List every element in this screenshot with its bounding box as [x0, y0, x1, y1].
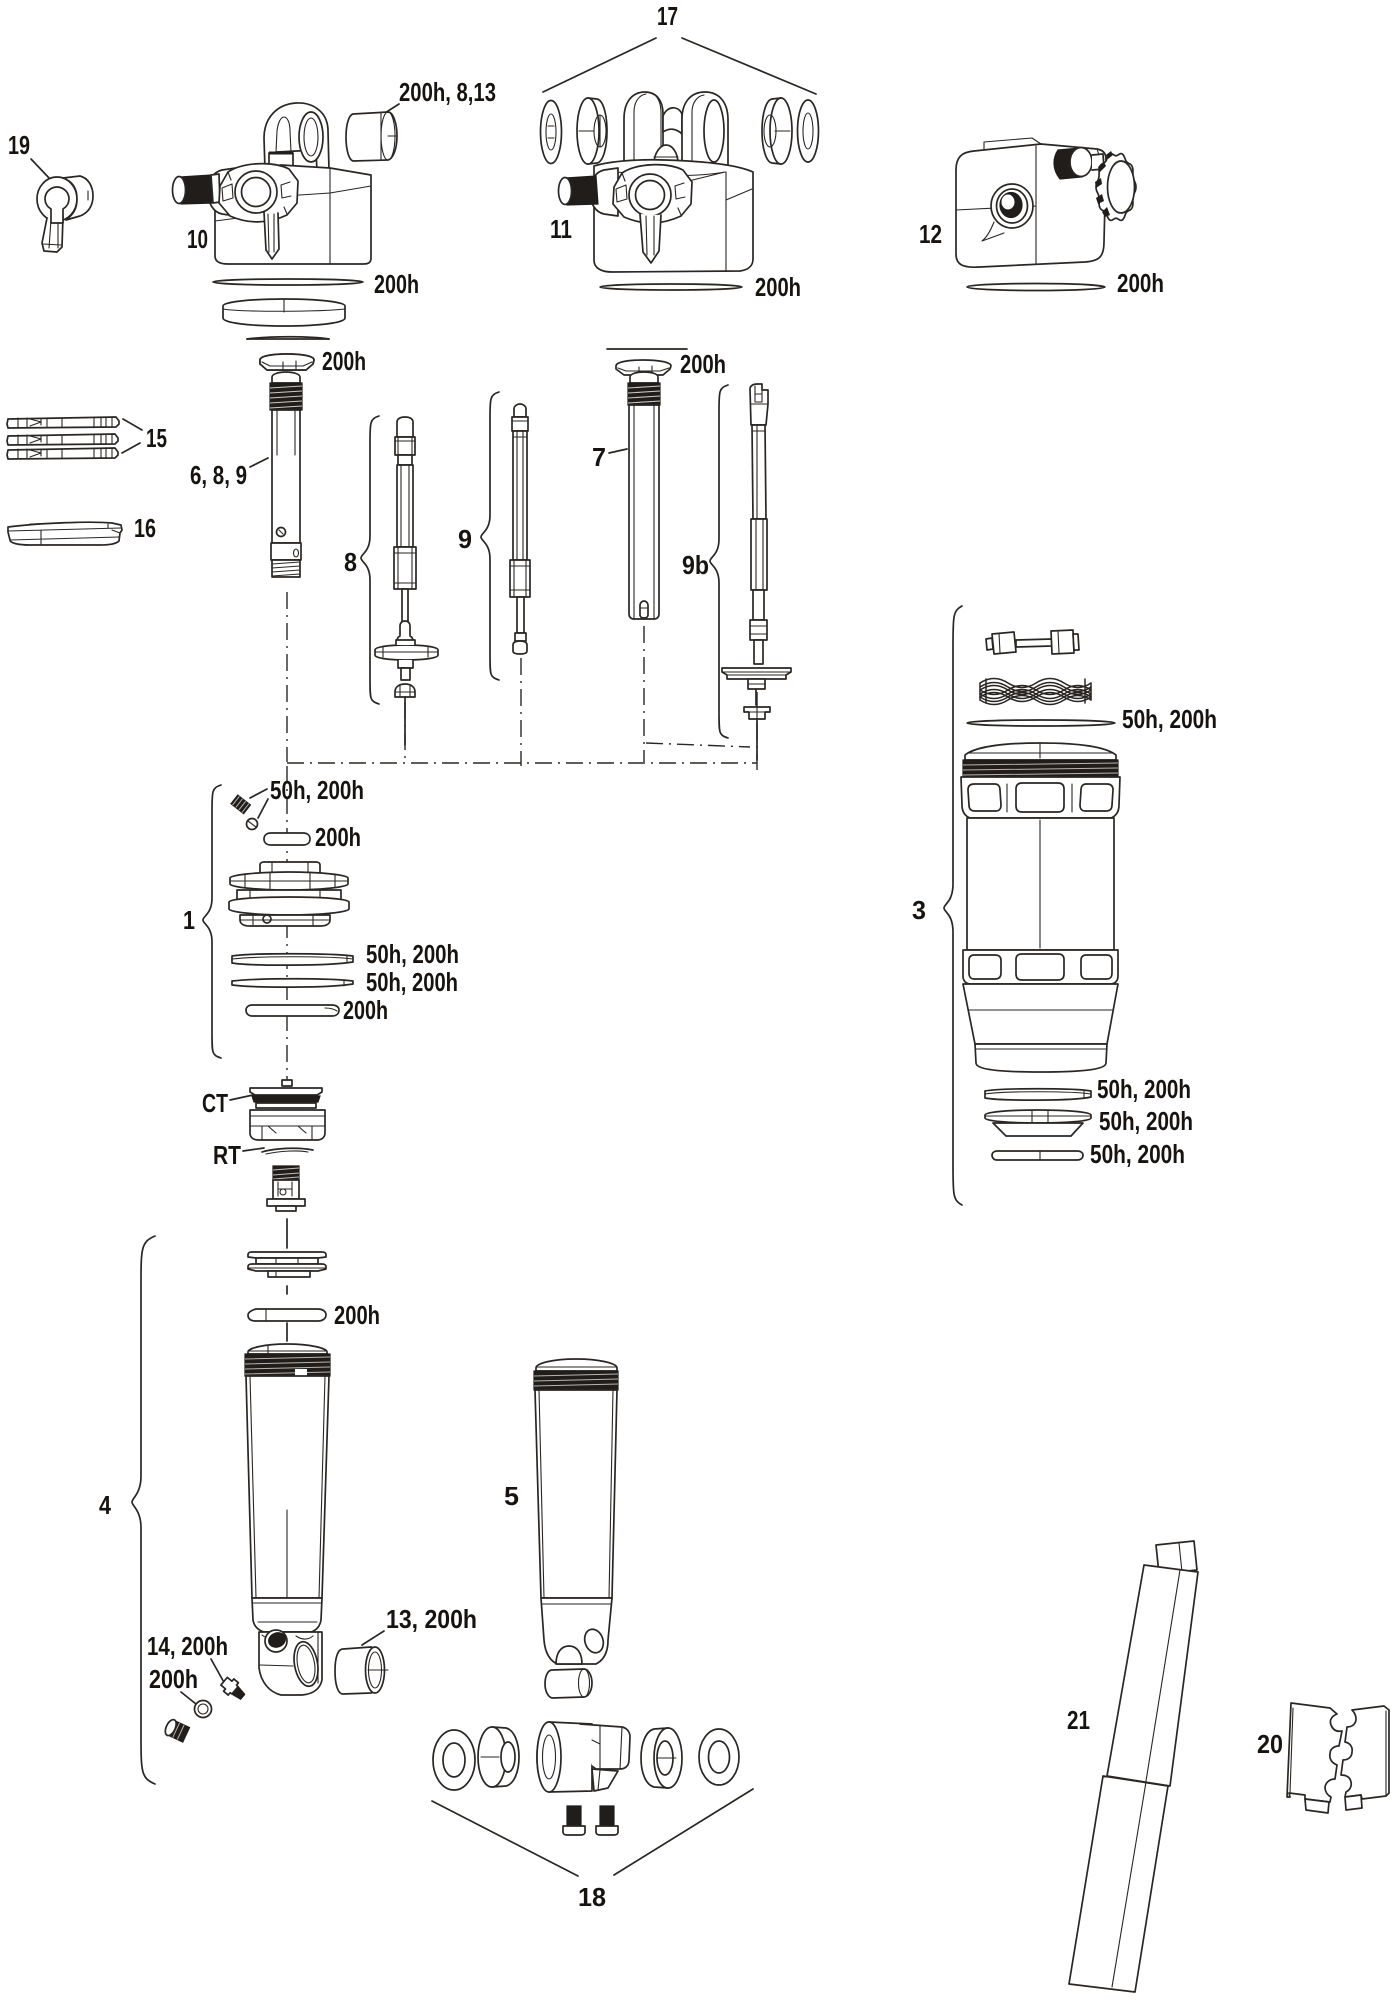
svg-text:16: 16 — [134, 513, 156, 543]
svg-text:50h, 200h: 50h, 200h — [366, 967, 458, 997]
svg-text:200h: 200h — [334, 1300, 380, 1330]
svg-text:19: 19 — [8, 130, 30, 160]
svg-text:17: 17 — [657, 1, 678, 31]
svg-text:10: 10 — [187, 224, 208, 254]
svg-text:20: 20 — [1257, 1729, 1283, 1759]
svg-text:50h, 200h: 50h, 200h — [366, 939, 459, 969]
svg-text:200h: 200h — [343, 995, 388, 1025]
svg-text:21: 21 — [1067, 1705, 1090, 1735]
svg-text:18: 18 — [578, 1882, 606, 1912]
svg-text:50h, 200h: 50h, 200h — [1097, 1074, 1191, 1104]
svg-text:CT: CT — [202, 1088, 228, 1118]
svg-text:200h: 200h — [1117, 268, 1164, 298]
svg-text:50h, 200h: 50h, 200h — [1099, 1106, 1193, 1136]
svg-text:3: 3 — [912, 895, 926, 925]
svg-text:200h: 200h — [374, 269, 419, 299]
svg-text:9: 9 — [458, 524, 472, 554]
svg-text:14, 200h: 14, 200h — [147, 1631, 228, 1661]
svg-text:200h: 200h — [315, 822, 361, 852]
svg-text:200h: 200h — [322, 346, 366, 376]
svg-text:1: 1 — [183, 905, 195, 935]
svg-text:50h, 200h: 50h, 200h — [1090, 1139, 1185, 1169]
svg-text:200h: 200h — [680, 349, 726, 379]
svg-text:7: 7 — [592, 442, 606, 472]
svg-text:50h, 200h: 50h, 200h — [1122, 704, 1217, 734]
svg-text:200h: 200h — [755, 272, 801, 302]
svg-text:9b: 9b — [682, 550, 709, 580]
svg-text:4: 4 — [99, 1490, 111, 1520]
svg-text:13, 200h: 13, 200h — [386, 1604, 477, 1634]
svg-text:200h, 8,13: 200h, 8,13 — [399, 77, 496, 107]
svg-text:6, 8, 9: 6, 8, 9 — [190, 460, 247, 490]
svg-text:5: 5 — [504, 1481, 519, 1511]
svg-text:50h, 200h: 50h, 200h — [270, 775, 364, 805]
svg-text:200h: 200h — [149, 1664, 198, 1694]
svg-text:12: 12 — [919, 219, 942, 249]
svg-text:11: 11 — [550, 214, 572, 244]
svg-text:RT: RT — [213, 1140, 241, 1170]
svg-text:15: 15 — [146, 423, 167, 453]
svg-text:8: 8 — [344, 547, 357, 577]
